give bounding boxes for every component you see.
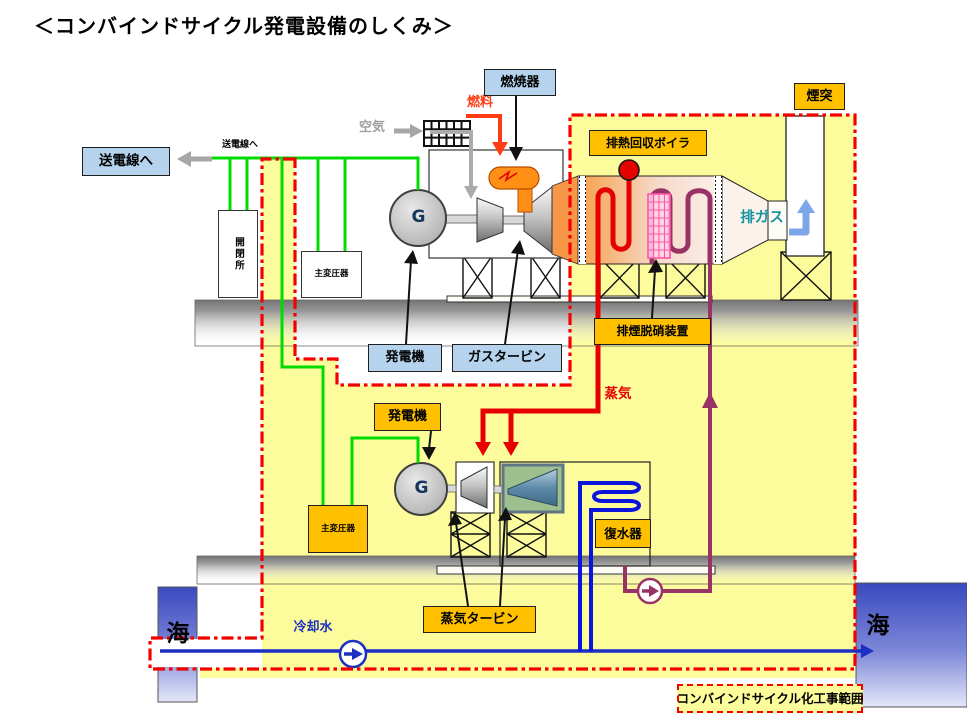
wire-bus — [212, 158, 418, 190]
steam-label: 蒸気 — [596, 385, 640, 403]
combined-cycle-diagram: ＜コンバインドサイクル発電設備のしくみ＞ 送電線へ 送電線へ 開閉所 主変圧器 … — [0, 0, 967, 725]
stack-label: 煙突 — [794, 83, 845, 110]
heat-recovery-boiler-label: 排熱回収ボイラ — [589, 130, 707, 156]
main-transformer-2-box: 主変圧器 — [308, 505, 368, 553]
gas-turbine-label: ガスタービン — [452, 344, 562, 372]
switchyard-box: 開閉所 — [218, 210, 258, 298]
to-grid-small-label: 送電線へ — [211, 139, 269, 152]
fuel-label: 燃料 — [459, 94, 501, 111]
exhaust-gas-label: 排ガス — [730, 207, 794, 230]
cooling-water-label: 冷却水 — [284, 618, 342, 637]
to-grid-label: 送電線へ — [82, 147, 170, 176]
combustor — [489, 167, 539, 189]
shaft — [503, 216, 524, 224]
gas-turbine-unit — [390, 121, 578, 264]
sea-right-label: 海 — [860, 612, 896, 640]
air-label: 空気 — [351, 119, 393, 137]
gt-support — [531, 256, 560, 298]
shaft — [446, 215, 478, 223]
gt-exhaust-diffuser — [552, 176, 578, 264]
shaft — [447, 485, 456, 492]
steam-turbine-label: 蒸気タービン — [423, 606, 536, 633]
sea-left-label: 海 — [160, 620, 196, 648]
turbine-base-bar — [447, 296, 712, 302]
steam-generator-label: 発電機 — [374, 403, 441, 431]
combustor-label: 燃焼器 — [484, 69, 556, 96]
condenser-label: 復水器 — [595, 519, 651, 548]
denox-catalyst-grid — [648, 194, 670, 258]
steam-base-bar — [437, 566, 715, 574]
gt-support — [463, 256, 492, 298]
main-transformer-1-box: 主変圧器 — [301, 251, 362, 298]
wire-transformer1 — [318, 158, 345, 251]
gas-generator-letter: G — [404, 204, 433, 232]
steam-drum — [619, 160, 639, 180]
denox-label: 排煙脱硝装置 — [594, 318, 711, 345]
steam-generator-letter: G — [407, 475, 436, 503]
wire-switchyard — [230, 158, 247, 210]
gas-generator-label: 発電機 — [368, 344, 442, 372]
construction-scope-label: コンバインドサイクル化工事範囲 — [677, 684, 863, 713]
page-title: ＜コンバインドサイクル発電設備のしくみ＞ — [34, 16, 454, 37]
